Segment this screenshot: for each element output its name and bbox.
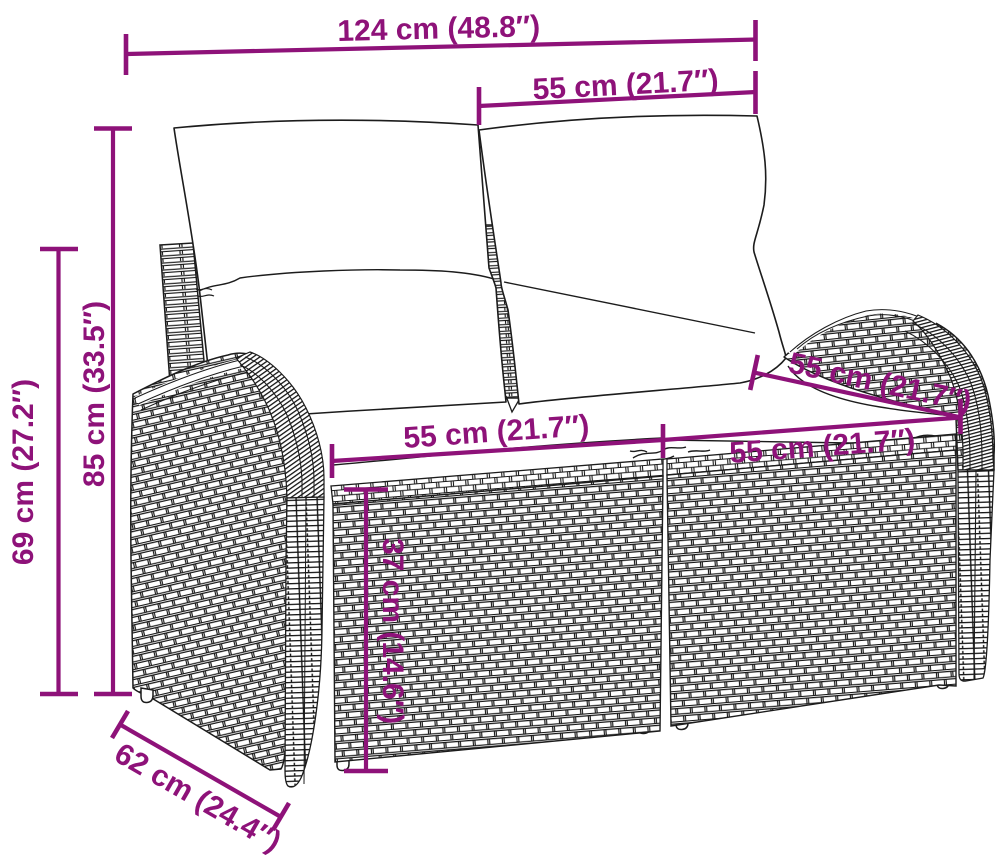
svg-text:85 cm (33.5″): 85 cm (33.5″) bbox=[78, 301, 111, 487]
svg-text:124 cm (48.8″): 124 cm (48.8″) bbox=[337, 10, 541, 48]
svg-text:69 cm (27.2″): 69 cm (27.2″) bbox=[7, 379, 40, 565]
svg-text:37 cm (14.6″): 37 cm (14.6″) bbox=[376, 538, 409, 724]
